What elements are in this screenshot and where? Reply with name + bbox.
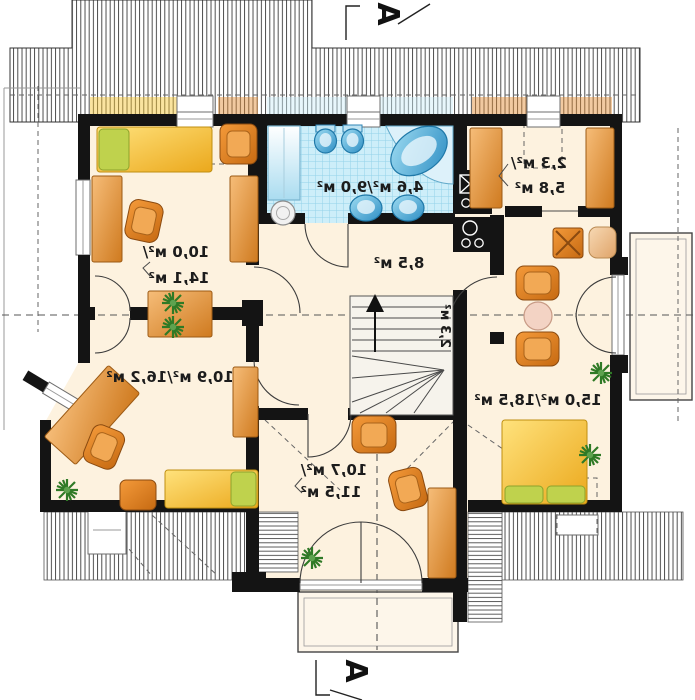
desk-room1 <box>92 176 122 262</box>
section-marker-top: A <box>346 2 430 40</box>
armchair-room4 <box>516 332 559 366</box>
label-room4: 15,0 м²/18,5 м² <box>474 391 602 409</box>
label-hall: 8,5 м² <box>374 254 425 272</box>
label-stairs: 2,3 м² <box>437 304 452 348</box>
pouf <box>589 227 616 258</box>
label-room3-line1: 10,7 м²/ <box>300 461 367 479</box>
balcony-bottom-center <box>298 592 458 652</box>
eaves-outline-left <box>4 86 80 430</box>
section-marker-bottom: A <box>316 659 373 700</box>
plant <box>162 316 184 338</box>
wardrobe-cabinet-left <box>470 128 502 208</box>
label-room1-line2: 14,1 м² <box>148 269 209 287</box>
pillow-room1 <box>99 129 129 170</box>
pillow-room2 <box>231 472 256 506</box>
pillow <box>547 486 585 503</box>
washing-machine <box>271 201 295 225</box>
pillow <box>505 486 543 503</box>
roof-terrace-bottom-left <box>44 508 256 580</box>
section-letter-top: A <box>370 2 405 26</box>
label-bathroom: 4,6 м²/9,0 м² <box>317 178 424 196</box>
floor-plan-svg: 10,0 м²/ 14,1 м² 4,6 м²/9,0 м² 2,3 м²/ 5… <box>0 0 695 700</box>
section-letter-bottom: A <box>338 659 373 683</box>
plant <box>301 547 323 569</box>
toilet <box>315 125 337 153</box>
label-wardrobe-line2: 5,8 м² <box>515 179 566 197</box>
balcony-right <box>630 233 692 400</box>
roof-terrace-bottom-right <box>468 512 683 622</box>
bidet <box>342 125 364 153</box>
stool-room2 <box>120 480 156 510</box>
washbasin <box>392 195 424 221</box>
desk-room3 <box>428 488 456 578</box>
label-room2: 10,9 м²/16,2 м² <box>106 368 234 386</box>
floor-plan-image: 10,0 м²/ 14,1 м² 4,6 м²/9,0 м² 2,3 м²/ 5… <box>0 0 695 700</box>
roof-hatch-top <box>10 0 640 122</box>
armchair-room4 <box>516 266 559 300</box>
plant <box>56 479 78 501</box>
plant <box>579 444 601 466</box>
plant <box>590 362 612 384</box>
label-room1-line1: 10,0 м²/ <box>142 243 209 261</box>
wardrobe-room1 <box>230 176 258 262</box>
wardrobe-room2 <box>233 367 258 437</box>
label-wardrobe-line1: 2,3 м²/ <box>510 154 567 172</box>
label-room3-line2: 11,5 м² <box>300 483 361 501</box>
wardrobe-cabinet-right <box>586 128 614 208</box>
side-table-x <box>553 228 583 258</box>
round-table <box>524 302 552 330</box>
plant <box>162 292 184 314</box>
washbasin <box>350 195 382 221</box>
deck-strip-center-left <box>256 512 298 572</box>
armchair-room1 <box>220 124 257 164</box>
armchair-room3 <box>352 416 396 453</box>
